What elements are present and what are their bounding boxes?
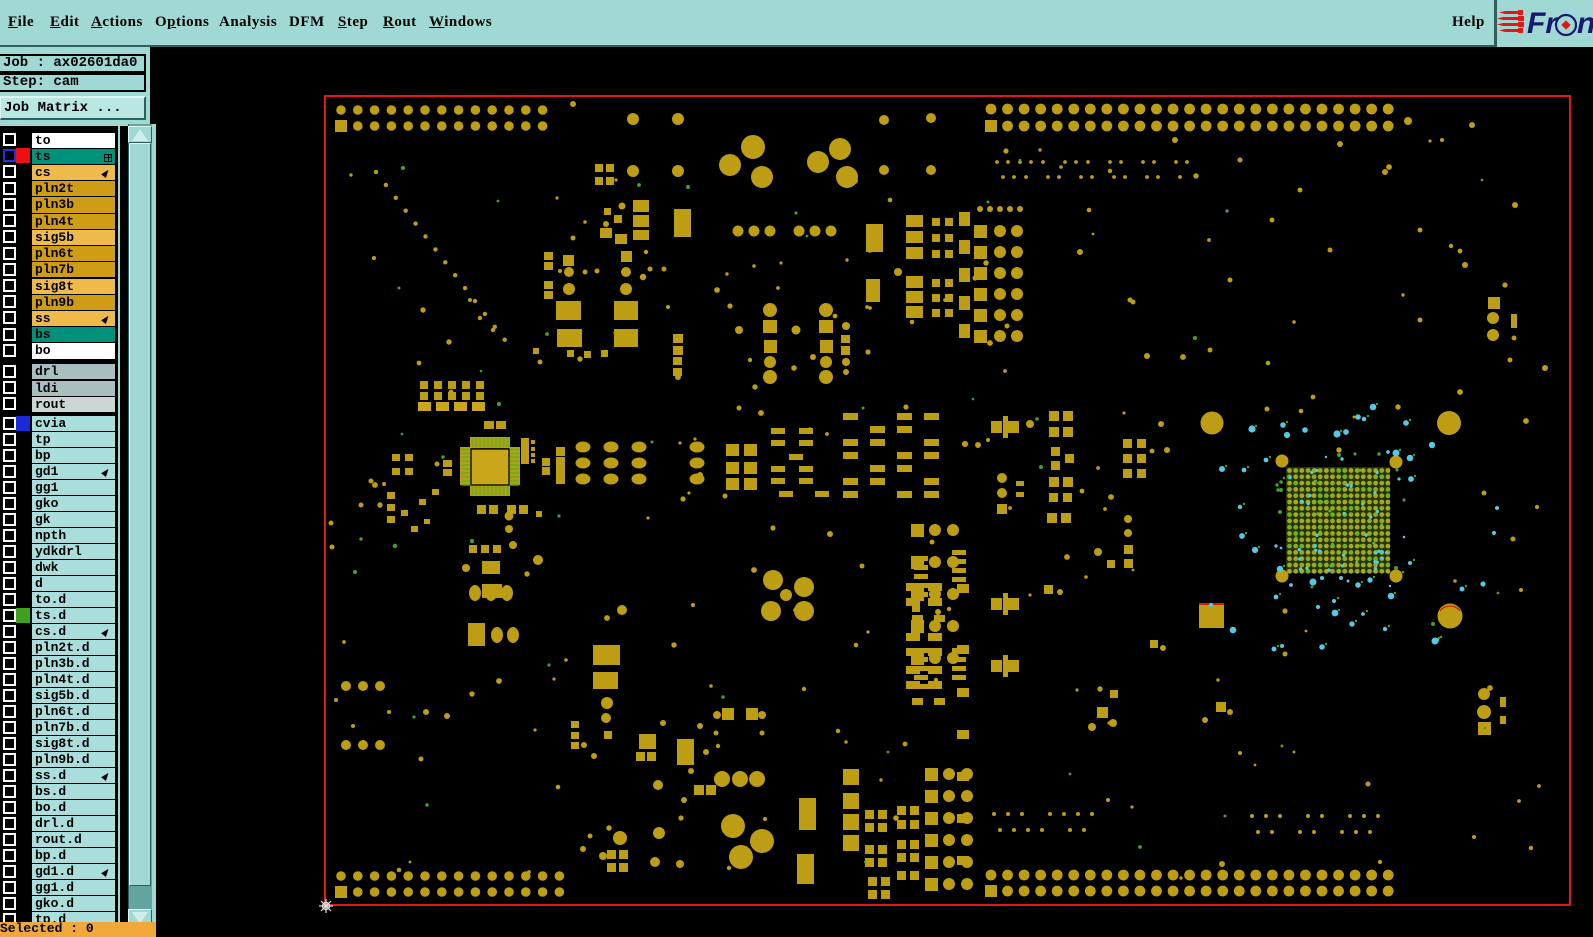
svg-text:n: n [1577,7,1593,40]
svg-text:Fr: Fr [1527,7,1559,40]
